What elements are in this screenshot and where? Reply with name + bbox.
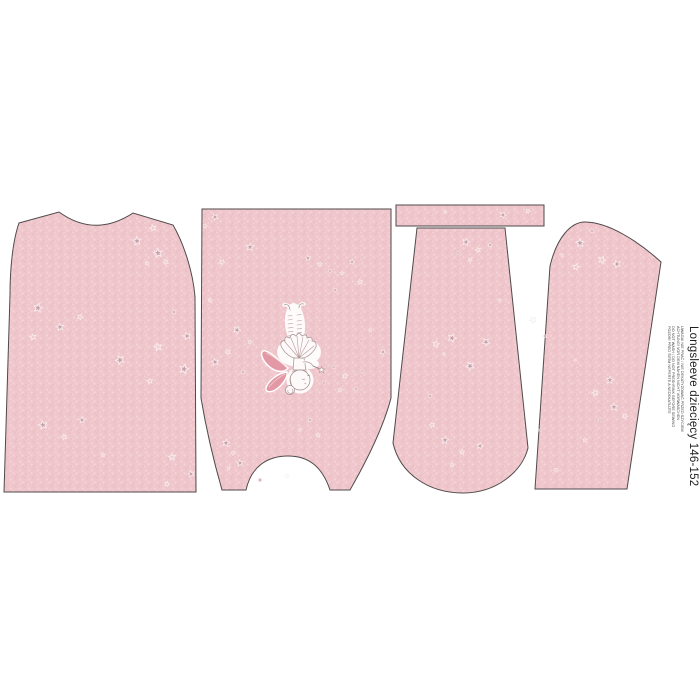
star-decoration — [529, 316, 538, 325]
selvedge-label: Longsleeve dziecięcy 146-152 UWAGA! NIE … — [661, 326, 699, 498]
care-line-pl: UWAGA! NIE PRAĆ / NIE DEKATYZOWAĆ PRZED … — [680, 326, 685, 498]
pattern-piece-back — [4, 212, 196, 492]
care-line-cz: POZOR! PŘED ŠITÍM NEPERTE A NEDEKATUJTE — [666, 326, 671, 498]
product-title: Longsleeve dziecięcy 146-152 — [687, 326, 699, 498]
fabric-panel-image — [0, 0, 700, 700]
star-decoration — [256, 476, 263, 483]
pattern-piece-sleeve-right — [535, 222, 661, 489]
star-decoration — [284, 473, 290, 479]
care-line-en: DO NOT WASH / DO NOT PRESHRINK BEFORE SE… — [671, 326, 676, 498]
care-line-de: ACHTUNG! VOR DEM NÄHEN NICHT VORWASCHEN — [675, 326, 680, 498]
care-instructions: UWAGA! NIE PRAĆ / NIE DEKATYZOWAĆ PRZED … — [666, 326, 684, 498]
pattern-piece-neckband — [396, 205, 544, 226]
pattern-pieces-canvas — [0, 0, 700, 700]
